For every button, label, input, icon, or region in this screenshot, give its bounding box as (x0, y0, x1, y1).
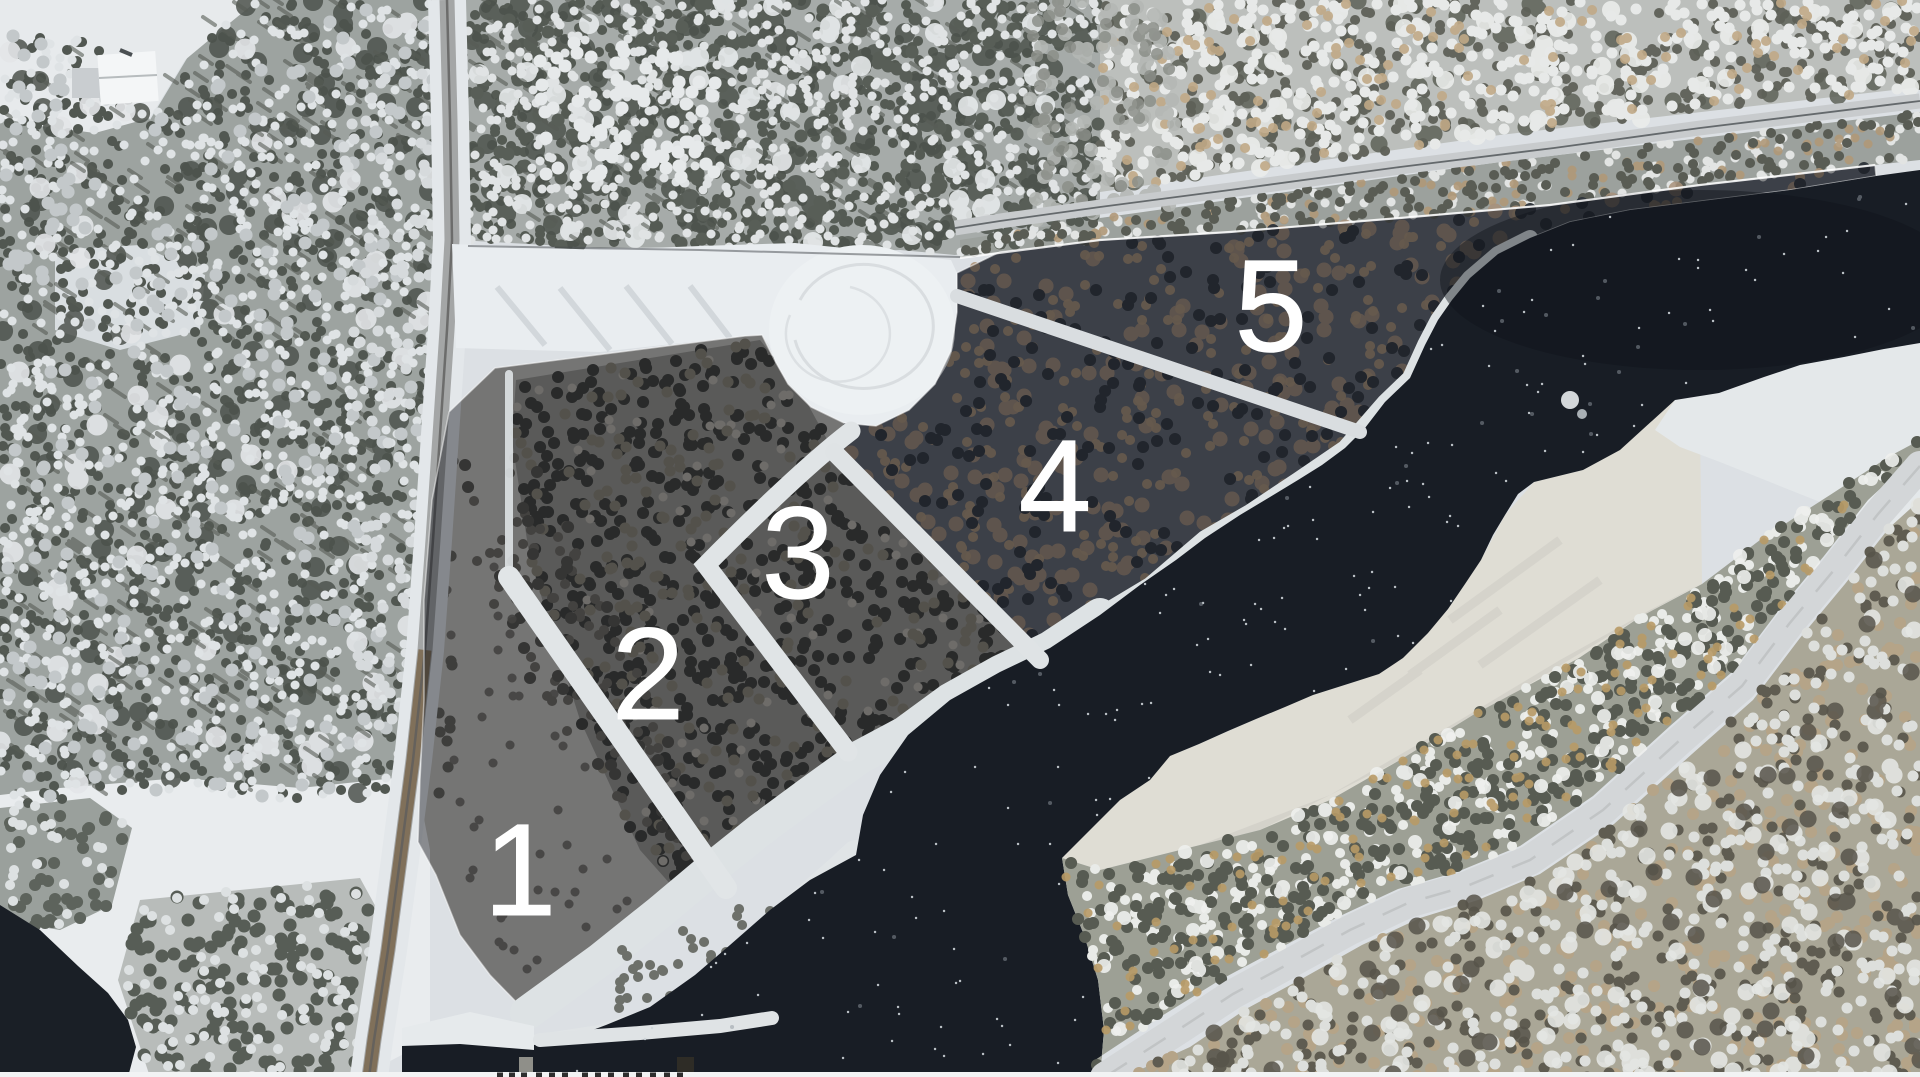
svg-text:3: 3 (762, 479, 835, 626)
svg-text:4: 4 (1019, 412, 1092, 559)
svg-text:5: 5 (1235, 232, 1308, 379)
svg-text:1: 1 (484, 796, 557, 943)
svg-text:2: 2 (612, 600, 685, 747)
